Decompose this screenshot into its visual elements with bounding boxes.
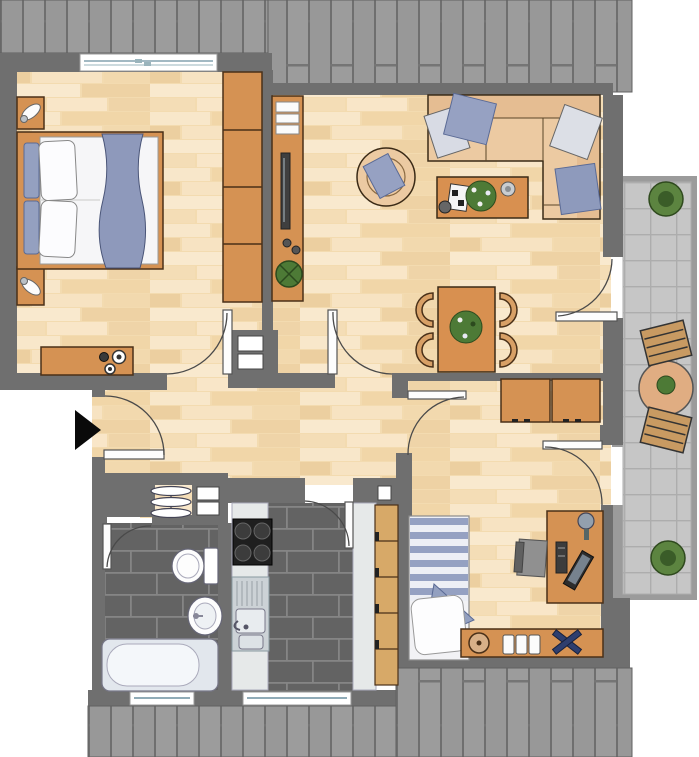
shaft-box-4 — [197, 502, 219, 515]
coffee-table-bouquet — [466, 181, 496, 211]
wall-balcony-pillar — [600, 425, 623, 445]
lowboard-shelf-1 — [276, 102, 299, 112]
coffee-table-bouquet-dot1 — [472, 188, 477, 193]
kitchen-counter-right — [353, 503, 376, 690]
cooktop-burner-4 — [254, 545, 270, 561]
sofa-pillow-blue-2 — [555, 163, 601, 214]
bedroom2-wardrobe-2 — [552, 379, 600, 422]
cooktop-burner-2 — [254, 523, 270, 539]
coffee-table-cup — [439, 201, 451, 213]
bath-sink-tap-knob — [193, 613, 199, 619]
dining-plant-dot3 — [463, 334, 468, 339]
bedroom-window-latch2 — [144, 62, 151, 66]
wardrobe2-handle-a — [563, 419, 569, 422]
coffee-table-bouquet-dot2 — [486, 191, 491, 196]
dresser-candle-dark — [100, 353, 109, 362]
sink-basin-large — [236, 609, 265, 633]
coffee-table-game-sq1 — [452, 190, 458, 196]
roof-top-right — [268, 0, 632, 92]
floor-plan-canvas — [0, 0, 699, 757]
lowboard-tv — [281, 153, 290, 229]
wall-radiator-band — [155, 473, 228, 485]
kitchen-cabinet-handle4 — [375, 640, 379, 649]
balcony-table-plant — [657, 376, 675, 394]
living-door-leaf — [328, 310, 337, 374]
living-balcony-door-leaf — [556, 312, 617, 321]
coffee-table-dish-center — [505, 186, 511, 192]
wall-kitchen-top-left — [228, 478, 305, 503]
sideboard-cylinder-2 — [516, 635, 527, 654]
cooktop-burner-1 — [235, 523, 251, 539]
dining-plant-dot1 — [458, 318, 463, 323]
sideboard-disc-center — [477, 641, 482, 646]
kitchen-cabinet-handle2 — [375, 568, 379, 577]
bed-pillow-white-1 — [39, 140, 78, 201]
shaft-box-2 — [238, 354, 263, 369]
shaft-box-3 — [197, 487, 219, 500]
lowboard-speaker-1 — [283, 239, 291, 247]
lamp-bottom-base — [21, 278, 28, 285]
sideboard-cylinder-3 — [529, 635, 540, 654]
bed-pillow-blue-2 — [24, 201, 39, 254]
sideboard-cylinder-1 — [503, 635, 514, 654]
bedroom-window-latch1 — [135, 59, 142, 63]
kitchen-cabinet-handle1 — [375, 532, 379, 541]
bedroom2-wardrobe-1 — [501, 379, 550, 422]
single-bed-pillow — [410, 594, 468, 655]
sink-basin-small — [239, 635, 263, 649]
balcony-plant-top-inner — [658, 191, 674, 207]
entrance-door-leaf — [104, 450, 164, 459]
desk-keyboard — [556, 542, 567, 573]
wall-left-exterior — [0, 53, 17, 390]
wardrobe1-handle-a — [512, 419, 518, 422]
wall-balcony-south — [601, 598, 630, 670]
bed-pillow-blue-1 — [24, 143, 39, 198]
cooktop-burner-3 — [235, 545, 251, 561]
wardrobe1-handle-b — [524, 419, 530, 422]
bed-pillow-white-2 — [39, 200, 78, 258]
desk-lamp — [578, 513, 594, 529]
bedroom-door-leaf — [223, 310, 232, 374]
lowboard-speaker-2 — [292, 246, 300, 254]
lowboard-shelf-2 — [276, 114, 299, 123]
desk-chair-back — [514, 542, 524, 572]
floor-plan-svg — [0, 0, 699, 757]
radiator-fin-3 — [151, 509, 191, 518]
radiator-fin-1 — [151, 487, 191, 496]
balcony-frame-left-c — [612, 505, 623, 600]
wall-entry-upper — [92, 388, 105, 397]
coffee-table-game-sq2 — [458, 200, 464, 206]
toilet-tank — [204, 548, 218, 584]
wall-living-top — [272, 83, 613, 95]
roof-bottom-right — [396, 668, 632, 757]
coffee-table-bouquet-dot3 — [478, 202, 483, 207]
kitchen-cabinet-handle3 — [375, 604, 379, 613]
wall-hall-block — [105, 473, 155, 517]
lowboard-shelf-3 — [276, 125, 299, 134]
wall-stub-bedroom2 — [392, 373, 408, 398]
dresser-candle-small-center — [108, 367, 112, 371]
wall-living-right-upper — [603, 95, 623, 257]
lamp-top-base — [21, 116, 28, 123]
sink-faucet-knob — [244, 625, 249, 630]
wall-hall-top-mid — [228, 373, 335, 388]
dining-plant-dot2 — [471, 322, 476, 327]
balcony-frame-top — [612, 176, 697, 182]
shaft-box-5 — [378, 486, 391, 500]
shaft-box-1 — [238, 336, 263, 351]
bed-runner-blue — [99, 134, 145, 268]
dresser-candle-ring-center — [117, 355, 122, 360]
desk-lamp-arm — [584, 529, 589, 540]
balcony-plant-bottom-inner — [660, 550, 676, 566]
wardrobe2-handle-b — [575, 419, 581, 422]
bathtub-inner — [107, 644, 199, 686]
radiator-fin-2 — [151, 498, 191, 507]
